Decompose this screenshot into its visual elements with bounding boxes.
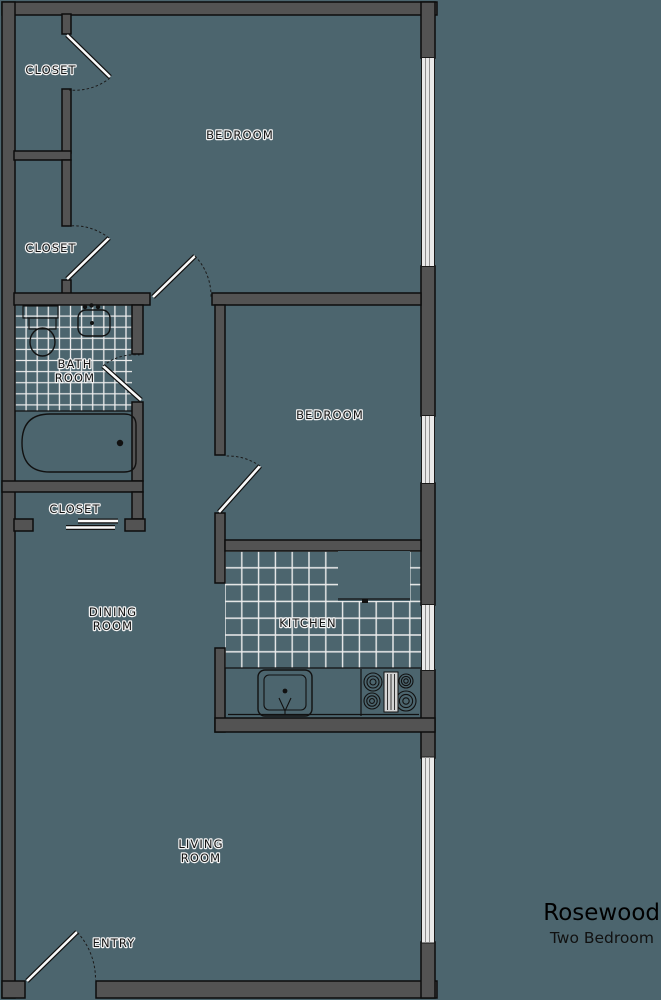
bedroom-second-left-wall-lower (215, 513, 225, 583)
wall-left (2, 2, 15, 998)
bedroom-main-label: BEDROOM (206, 128, 274, 142)
bathroom-label-line2: ROOM (55, 371, 95, 385)
kitchen-bottom-wall (215, 718, 435, 732)
bedroom-second-window (422, 416, 435, 484)
room-labels: CLOSET BEDROOM CLOSET BATH ROOM BEDROOM … (25, 63, 364, 950)
floor-plan-page: CLOSET BEDROOM CLOSET BATH ROOM BEDROOM … (0, 0, 661, 1000)
hall-closet-right-foot (125, 519, 145, 531)
stove-center-vent (384, 672, 398, 712)
living-room-label-line2: ROOM (181, 851, 221, 865)
wall-right-seg4 (421, 670, 435, 758)
hall-closet-right-wall (132, 492, 143, 519)
tub-drain (117, 440, 123, 446)
burner-top-left (364, 673, 382, 691)
dining-room-label-line1: DINING (89, 605, 137, 619)
kitchen-faucet (279, 698, 291, 715)
wall-right-seg5 (421, 942, 435, 998)
closet-top-label: CLOSET (25, 63, 76, 77)
closet-wall-bottom-stub (62, 280, 71, 294)
closet-top-door-arc (69, 78, 110, 90)
entry-door (27, 932, 96, 981)
closet-wall-lower (62, 160, 71, 226)
closet-mid-door-arc (69, 226, 109, 238)
wall-right-seg2 (421, 266, 435, 416)
title-block: Rosewood Two Bedroom (543, 900, 660, 947)
kitchen-label: KITCHEN (279, 616, 337, 630)
closet-wall-top-stub (62, 14, 71, 34)
plan-title: Rosewood (543, 900, 660, 926)
burner-bottom-right (396, 691, 416, 711)
living-room-label-line1: LIVING (178, 837, 223, 851)
bedroom-second-label: BEDROOM (296, 408, 364, 422)
bathtub (22, 414, 136, 472)
wall-right-seg1 (421, 2, 435, 58)
refrigerator (338, 551, 410, 603)
bedroom-second-top-wall (212, 293, 421, 305)
wall-top (2, 2, 437, 15)
hall-closet-left-stub (14, 519, 33, 531)
floor-plan-canvas: CLOSET BEDROOM CLOSET BATH ROOM BEDROOM … (0, 0, 661, 1000)
entry-label: ENTRY (93, 936, 136, 950)
dining-room-label-line2: ROOM (93, 619, 133, 633)
bathroom-label-line1: BATH (58, 357, 93, 371)
living-room-window (422, 757, 435, 943)
bathroom-top-wall (14, 293, 150, 305)
wall-right-seg3 (421, 483, 435, 605)
bedroom-second-door (219, 456, 260, 512)
closet-divider-wall (14, 151, 71, 160)
wall-bottom (96, 981, 437, 998)
bathroom-bottom-wall (2, 481, 143, 492)
burner-bottom-left (364, 693, 380, 709)
stove (361, 669, 416, 716)
bedroom-main-door (153, 256, 211, 297)
closet-wall-upper (62, 89, 71, 153)
kitchen-top-wall (225, 540, 421, 551)
bedroom-second-door-arc (227, 456, 261, 466)
bathroom-right-wall-upper (132, 305, 143, 354)
bedroom-main-window (422, 58, 435, 267)
wall-bottom-left-stub (2, 981, 25, 998)
kitchen-sink (258, 670, 312, 716)
bedroom-second-left-wall-upper (215, 305, 225, 455)
closet-mid-label: CLOSET (25, 241, 76, 255)
kitchen-window (422, 605, 435, 671)
burner-top-right (399, 674, 413, 688)
hall-closet-sliding-doors (66, 521, 118, 528)
plan-subtitle: Two Bedroom (549, 929, 654, 947)
bedroom-main-door-arc (195, 256, 211, 297)
hall-closet-label: CLOSET (49, 502, 100, 516)
